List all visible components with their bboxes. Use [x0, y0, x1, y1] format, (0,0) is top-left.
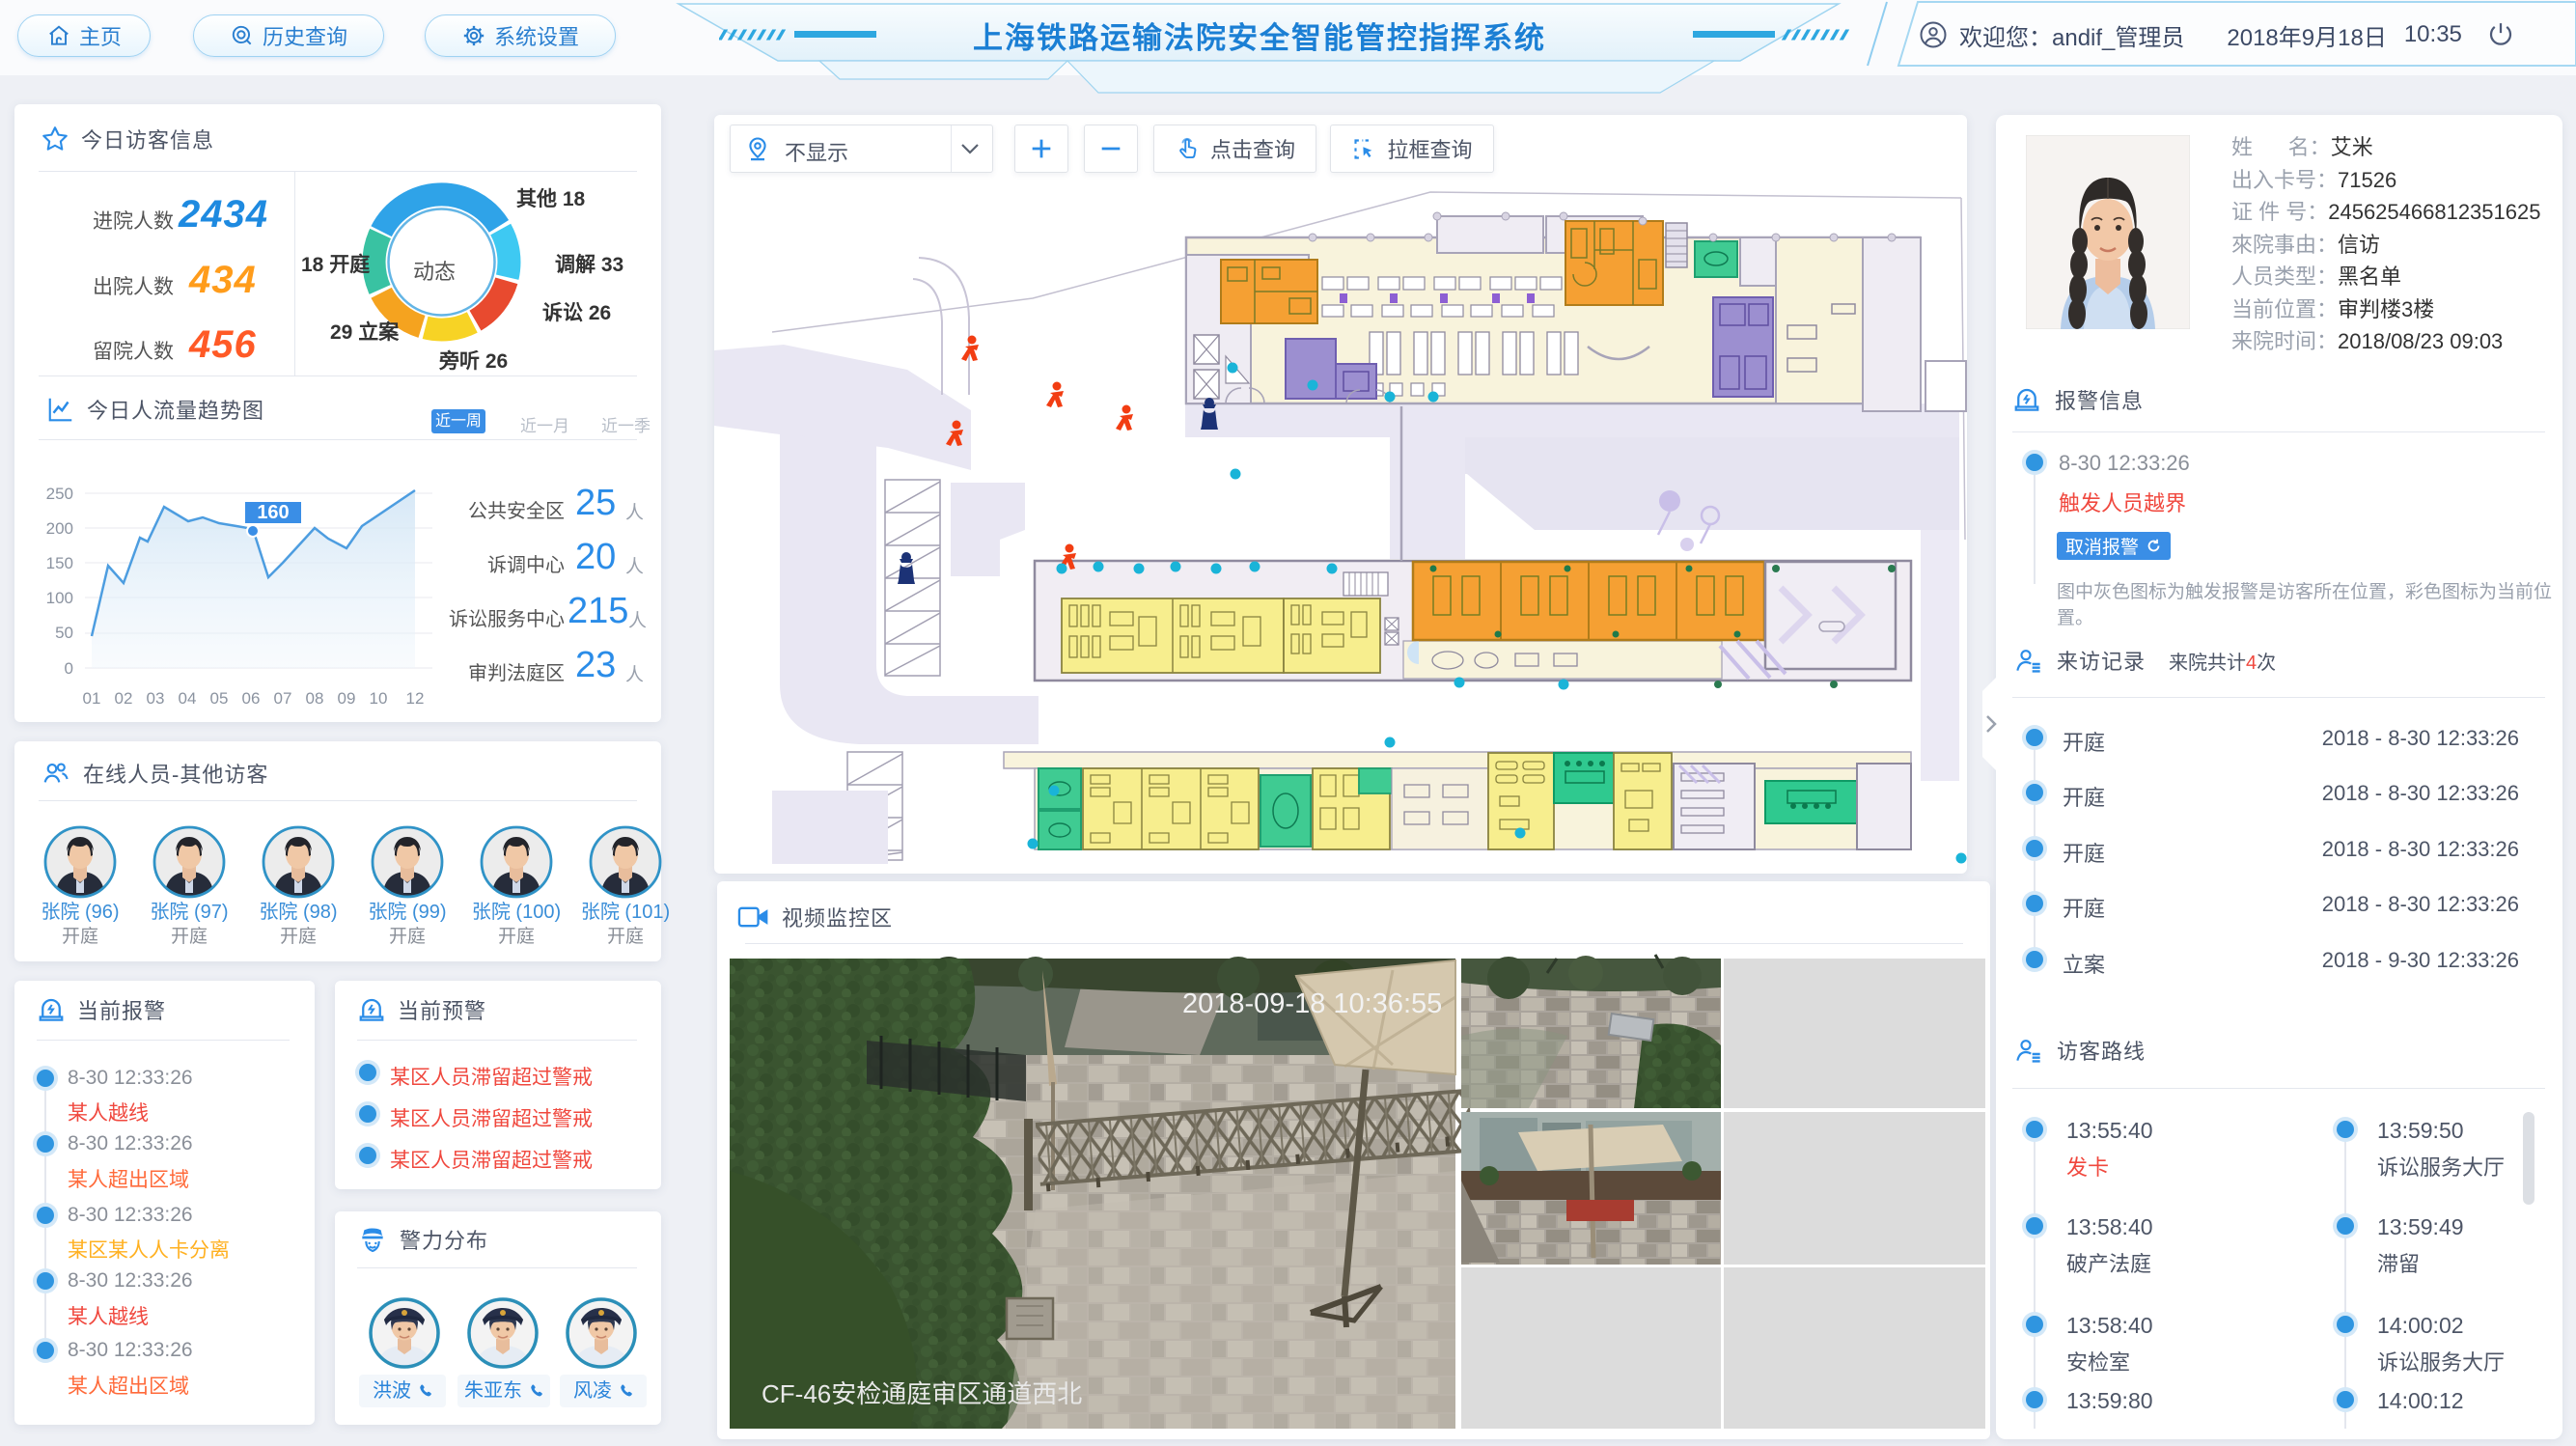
svg-text:0: 0: [65, 659, 73, 678]
svg-text:02: 02: [115, 689, 133, 708]
svg-text:2018-09-18 10:36:55: 2018-09-18 10:36:55: [1182, 988, 1442, 1019]
svg-text:160: 160: [257, 502, 289, 523]
svg-text:200: 200: [46, 519, 73, 538]
svg-text:CF-46安检通庭审区通道西北: CF-46安检通庭审区通道西北: [762, 1379, 1082, 1408]
svg-text:06: 06: [242, 689, 261, 708]
svg-text:03: 03: [147, 689, 165, 708]
svg-text:01: 01: [83, 689, 101, 708]
svg-text:150: 150: [46, 554, 73, 572]
svg-text:50: 50: [55, 624, 73, 642]
svg-text:08: 08: [306, 689, 324, 708]
svg-text:04: 04: [179, 689, 197, 708]
svg-text:250: 250: [46, 485, 73, 503]
svg-text:10: 10: [370, 689, 388, 708]
svg-text:100: 100: [46, 589, 73, 607]
svg-text:07: 07: [274, 689, 292, 708]
svg-text:12: 12: [406, 689, 425, 708]
svg-text:09: 09: [338, 689, 356, 708]
svg-text:05: 05: [210, 689, 229, 708]
